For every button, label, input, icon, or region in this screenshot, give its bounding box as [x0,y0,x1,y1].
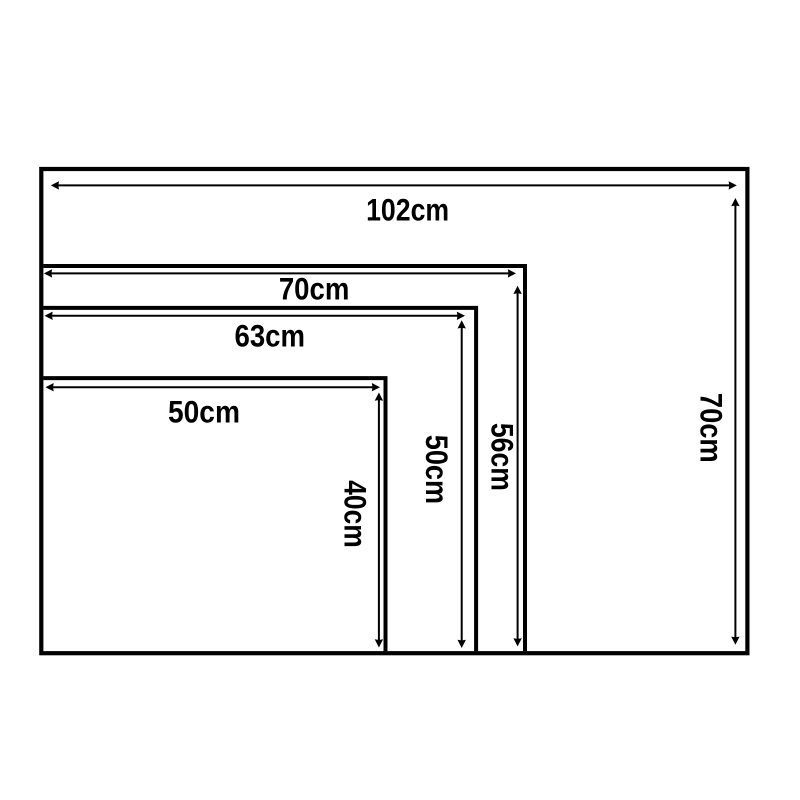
svg-text:70cm: 70cm [694,393,730,463]
svg-text:50cm: 50cm [168,394,240,430]
svg-text:50cm: 50cm [419,435,455,504]
svg-text:63cm: 63cm [235,318,306,354]
svg-text:70cm: 70cm [279,270,350,306]
svg-text:56cm: 56cm [485,423,521,491]
svg-text:40cm: 40cm [338,480,374,548]
svg-text:102cm: 102cm [366,191,449,227]
